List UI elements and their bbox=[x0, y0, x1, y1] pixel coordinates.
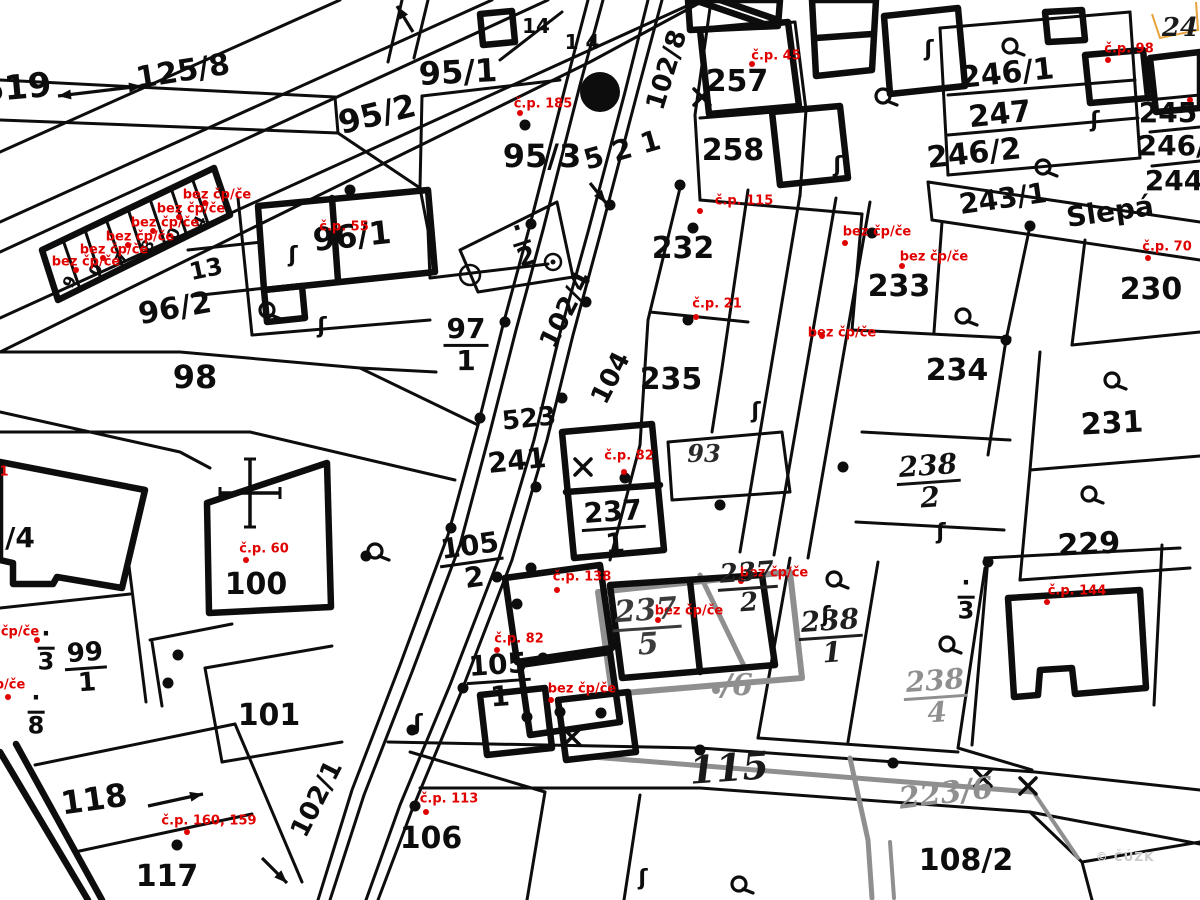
boundary-line bbox=[238, 198, 252, 335]
building-outline bbox=[505, 565, 612, 662]
definition-point-dot bbox=[184, 829, 190, 835]
cadastral-map[interactable]: ʃʃʃʃʃʃʃʃʃʃ 519125/895/195/295/3141 42572… bbox=[0, 0, 1200, 900]
definition-point-dot bbox=[819, 333, 825, 339]
boundary-line bbox=[1082, 862, 1092, 900]
boundary-point-dot bbox=[520, 120, 531, 131]
boundary-point-dot bbox=[715, 500, 726, 511]
boundary-line bbox=[0, 0, 340, 152]
boundary-line bbox=[188, 242, 262, 250]
boundary-line bbox=[1020, 470, 1030, 580]
definition-point-dot bbox=[423, 809, 429, 815]
boundary-line bbox=[205, 668, 222, 762]
boundary-line bbox=[335, 97, 338, 133]
boundary-line bbox=[958, 568, 985, 748]
boundary-line bbox=[222, 742, 342, 762]
boundary-line bbox=[0, 594, 130, 608]
boundary-point-dot bbox=[410, 801, 421, 812]
courtyard-symbol-icon bbox=[1047, 172, 1057, 176]
boundary-line bbox=[610, 188, 680, 560]
definition-point-dot bbox=[655, 617, 661, 623]
boundary-line bbox=[940, 12, 1130, 28]
gate-hook-icon: ʃ bbox=[832, 153, 843, 178]
boundary-line bbox=[700, 200, 862, 214]
building-outline bbox=[1150, 52, 1200, 112]
definition-point-dot bbox=[100, 255, 106, 261]
definition-point-dot bbox=[1105, 57, 1111, 63]
boundary-line bbox=[366, 0, 648, 900]
boundary-point-dot bbox=[538, 653, 549, 664]
definition-point-dot bbox=[494, 647, 500, 653]
definition-point-dot bbox=[5, 694, 11, 700]
boundary-line bbox=[972, 558, 988, 745]
boundary-line bbox=[0, 80, 335, 97]
boundary-line bbox=[1072, 332, 1200, 345]
building-outline bbox=[0, 752, 88, 900]
boundary-point-dot bbox=[526, 563, 537, 574]
boundary-point-dot bbox=[557, 393, 568, 404]
courtyard-symbol-icon bbox=[838, 584, 848, 588]
grey-line bbox=[1032, 790, 1078, 858]
boundary-line bbox=[758, 738, 958, 752]
definition-point-dot bbox=[517, 110, 523, 116]
definition-point-dot bbox=[34, 637, 40, 643]
large-filled-circle bbox=[580, 72, 620, 112]
boundary-line bbox=[0, 352, 478, 425]
boundary-line bbox=[985, 548, 1180, 558]
courtyard-symbol-icon bbox=[951, 649, 961, 653]
definition-point-dot bbox=[548, 697, 554, 703]
boundary-line bbox=[856, 522, 1004, 530]
definition-point-dot bbox=[749, 61, 755, 67]
definition-point-dot bbox=[1044, 599, 1050, 605]
boundary-line bbox=[85, 230, 101, 279]
boundary-line bbox=[128, 558, 146, 702]
boundary-point-dot bbox=[867, 228, 878, 239]
watermark: © ČÚZK bbox=[1096, 850, 1155, 864]
boundary-line bbox=[1152, 161, 1200, 166]
gate-hook-icon: ʃ bbox=[1089, 108, 1100, 133]
definition-point-dot bbox=[125, 242, 131, 248]
boundary-point-dot bbox=[173, 650, 184, 661]
building-outline bbox=[566, 485, 660, 492]
gate-hook-icon: ʃ bbox=[750, 399, 761, 424]
boundary-line bbox=[63, 240, 80, 289]
definition-point-dot bbox=[150, 228, 156, 234]
building-outline bbox=[207, 463, 331, 613]
grey-line bbox=[890, 842, 894, 898]
orange-boundary-line bbox=[1152, 2, 1198, 38]
boundary-line bbox=[1072, 240, 1085, 345]
boundary-point-dot bbox=[446, 523, 457, 534]
definition-point-dot bbox=[176, 214, 182, 220]
boundary-point-dot bbox=[983, 557, 994, 568]
boundary-line bbox=[808, 202, 870, 558]
boundary-line bbox=[668, 432, 790, 500]
definition-point-dot bbox=[842, 240, 848, 246]
definition-point-dot bbox=[738, 578, 744, 584]
boundary-point-dot bbox=[888, 758, 899, 769]
building-outline bbox=[1008, 590, 1146, 697]
boundary-line bbox=[1030, 352, 1040, 470]
boundary-line bbox=[0, 120, 338, 133]
boundary-line bbox=[150, 624, 232, 640]
gate-hook-icon: ʃ bbox=[316, 314, 327, 339]
building-outline bbox=[700, 22, 799, 114]
boundary-point-dot bbox=[531, 482, 542, 493]
boundary-point-dot bbox=[172, 840, 183, 851]
boundary-line bbox=[934, 222, 942, 332]
boundary-line bbox=[0, 0, 548, 252]
definition-point-dot bbox=[73, 267, 79, 273]
definition-point-dot bbox=[1187, 97, 1193, 103]
boundary-line bbox=[774, 198, 836, 555]
definition-point-dot bbox=[554, 587, 560, 593]
definition-point-dot bbox=[899, 263, 905, 269]
courtyard-symbol-icon bbox=[1014, 51, 1024, 55]
grey-overlay-lines bbox=[592, 572, 1078, 898]
courtyard-symbol-icon bbox=[1116, 385, 1126, 389]
boundary-line bbox=[848, 562, 878, 742]
boundary-line bbox=[948, 118, 1138, 135]
building-outline bbox=[1085, 50, 1148, 103]
parcel-boundary-lines bbox=[0, 0, 1200, 900]
boundary-line bbox=[152, 642, 162, 706]
boundary-point-dot bbox=[492, 572, 503, 583]
boundary-line bbox=[192, 288, 266, 296]
boundary-line bbox=[712, 190, 748, 432]
map-canvas[interactable]: ʃʃʃʃʃʃʃʃʃʃ bbox=[0, 0, 1200, 900]
gate-hook-icon: ʃ bbox=[935, 520, 946, 545]
boundary-point-dot bbox=[688, 223, 699, 234]
boundary-line bbox=[740, 195, 800, 552]
gate-hook-icon: ʃ bbox=[287, 243, 298, 268]
boundary-line bbox=[940, 28, 948, 175]
boundary-line bbox=[932, 220, 1200, 260]
boundary-line bbox=[420, 96, 422, 188]
boundary-point-dot bbox=[475, 413, 486, 424]
building-outline bbox=[332, 198, 338, 281]
boundary-line bbox=[1020, 568, 1190, 580]
gate-hook-icon: ʃ bbox=[637, 866, 648, 891]
building-outline bbox=[690, 581, 700, 672]
boundary-point-dot bbox=[526, 219, 537, 230]
boundary-line bbox=[862, 432, 1010, 440]
boundary-line bbox=[360, 368, 436, 372]
boundary-line bbox=[0, 412, 210, 468]
definition-point-dot bbox=[697, 208, 703, 214]
definition-point-dot bbox=[202, 200, 208, 206]
boundary-line bbox=[150, 199, 166, 247]
boundary-point-dot bbox=[596, 708, 607, 719]
boundary-point-dot bbox=[1001, 335, 1012, 346]
grey-line bbox=[700, 575, 745, 668]
boundary-line bbox=[0, 0, 705, 352]
boundary-point-dot bbox=[1025, 221, 1036, 232]
boundary-point-dot bbox=[838, 462, 849, 473]
building-outline bbox=[0, 462, 145, 588]
boundary-point-dot bbox=[500, 317, 511, 328]
boundary-line bbox=[75, 814, 252, 852]
boundary-line bbox=[128, 209, 144, 258]
boundary-line bbox=[928, 182, 1200, 222]
boundary-line bbox=[928, 182, 932, 220]
boundary-line bbox=[1150, 127, 1200, 132]
courtyard-symbol-icon bbox=[887, 101, 897, 105]
definition-point-dot bbox=[621, 469, 627, 475]
grey-dot bbox=[712, 686, 720, 694]
definition-point-dot bbox=[243, 557, 249, 563]
boundary-point-dot bbox=[345, 185, 356, 196]
boundary-point-dot bbox=[522, 712, 533, 723]
gate-hook-icon: ʃ bbox=[923, 37, 934, 62]
boundary-point-dot bbox=[675, 180, 686, 191]
boundary-line bbox=[852, 214, 862, 330]
boundary-point-dot bbox=[683, 315, 694, 326]
courtyard-symbol-icon bbox=[1093, 499, 1103, 503]
boundary-line bbox=[527, 792, 545, 900]
boundary-point-dot bbox=[695, 745, 706, 756]
boundary-line bbox=[205, 646, 332, 668]
boundary-line bbox=[106, 219, 123, 268]
boundary-line bbox=[410, 752, 545, 792]
gate-hook-icon: ʃ bbox=[412, 711, 423, 736]
building-outline bbox=[16, 744, 102, 900]
boundary-point-dot bbox=[555, 707, 566, 718]
boundary-line bbox=[35, 724, 235, 765]
building-outline bbox=[816, 34, 872, 38]
boundary-line bbox=[235, 724, 302, 882]
boundary-line bbox=[0, 0, 700, 318]
building-outline bbox=[258, 190, 435, 290]
boundary-line bbox=[338, 133, 430, 278]
courtyard-symbol-icon bbox=[743, 889, 753, 893]
gate-hook-icon: ʃ bbox=[820, 603, 831, 628]
boundary-line bbox=[948, 80, 1135, 95]
boundary-point-dot bbox=[163, 678, 174, 689]
boundary-line bbox=[1030, 456, 1200, 470]
courtyard-symbol-icon bbox=[379, 556, 389, 560]
definition-point-dot bbox=[326, 234, 332, 240]
boundary-line bbox=[171, 188, 187, 236]
ring-symbol-icon bbox=[551, 260, 556, 265]
courtyard-symbol-icon bbox=[967, 321, 977, 325]
boundary-line bbox=[852, 330, 1010, 338]
definition-point-dot bbox=[693, 314, 699, 320]
boundary-point-dot bbox=[458, 683, 469, 694]
boundary-line bbox=[1130, 12, 1140, 158]
definition-point-dot bbox=[1145, 255, 1151, 261]
boundary-point-dot bbox=[581, 297, 592, 308]
boundary-point-dot bbox=[512, 599, 523, 610]
orange-line bbox=[1152, 2, 1198, 38]
